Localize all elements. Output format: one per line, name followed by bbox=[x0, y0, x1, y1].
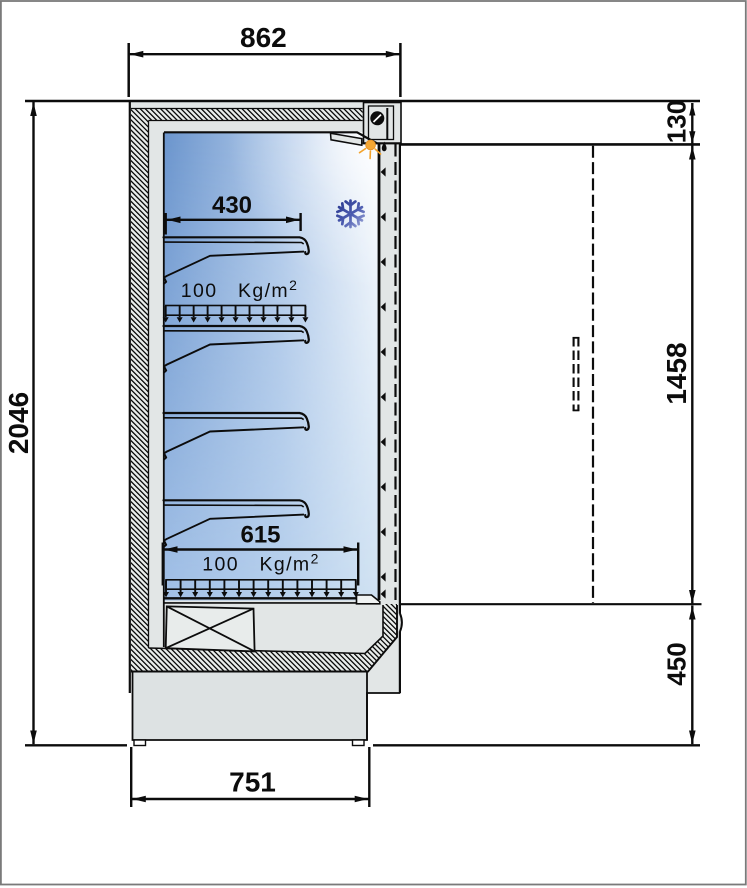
svg-text:100 Kg/m2: 100 Kg/m2 bbox=[181, 277, 299, 302]
svg-text:862: 862 bbox=[240, 22, 287, 53]
svg-text:130: 130 bbox=[662, 100, 692, 143]
svg-text:2046: 2046 bbox=[3, 392, 34, 454]
svg-text:751: 751 bbox=[229, 767, 276, 798]
svg-text:100 Kg/m2: 100 Kg/m2 bbox=[202, 551, 320, 576]
svg-text:450: 450 bbox=[662, 642, 692, 685]
svg-text:430: 430 bbox=[212, 192, 252, 219]
svg-text:615: 615 bbox=[240, 522, 280, 549]
svg-text:1458: 1458 bbox=[661, 342, 692, 404]
